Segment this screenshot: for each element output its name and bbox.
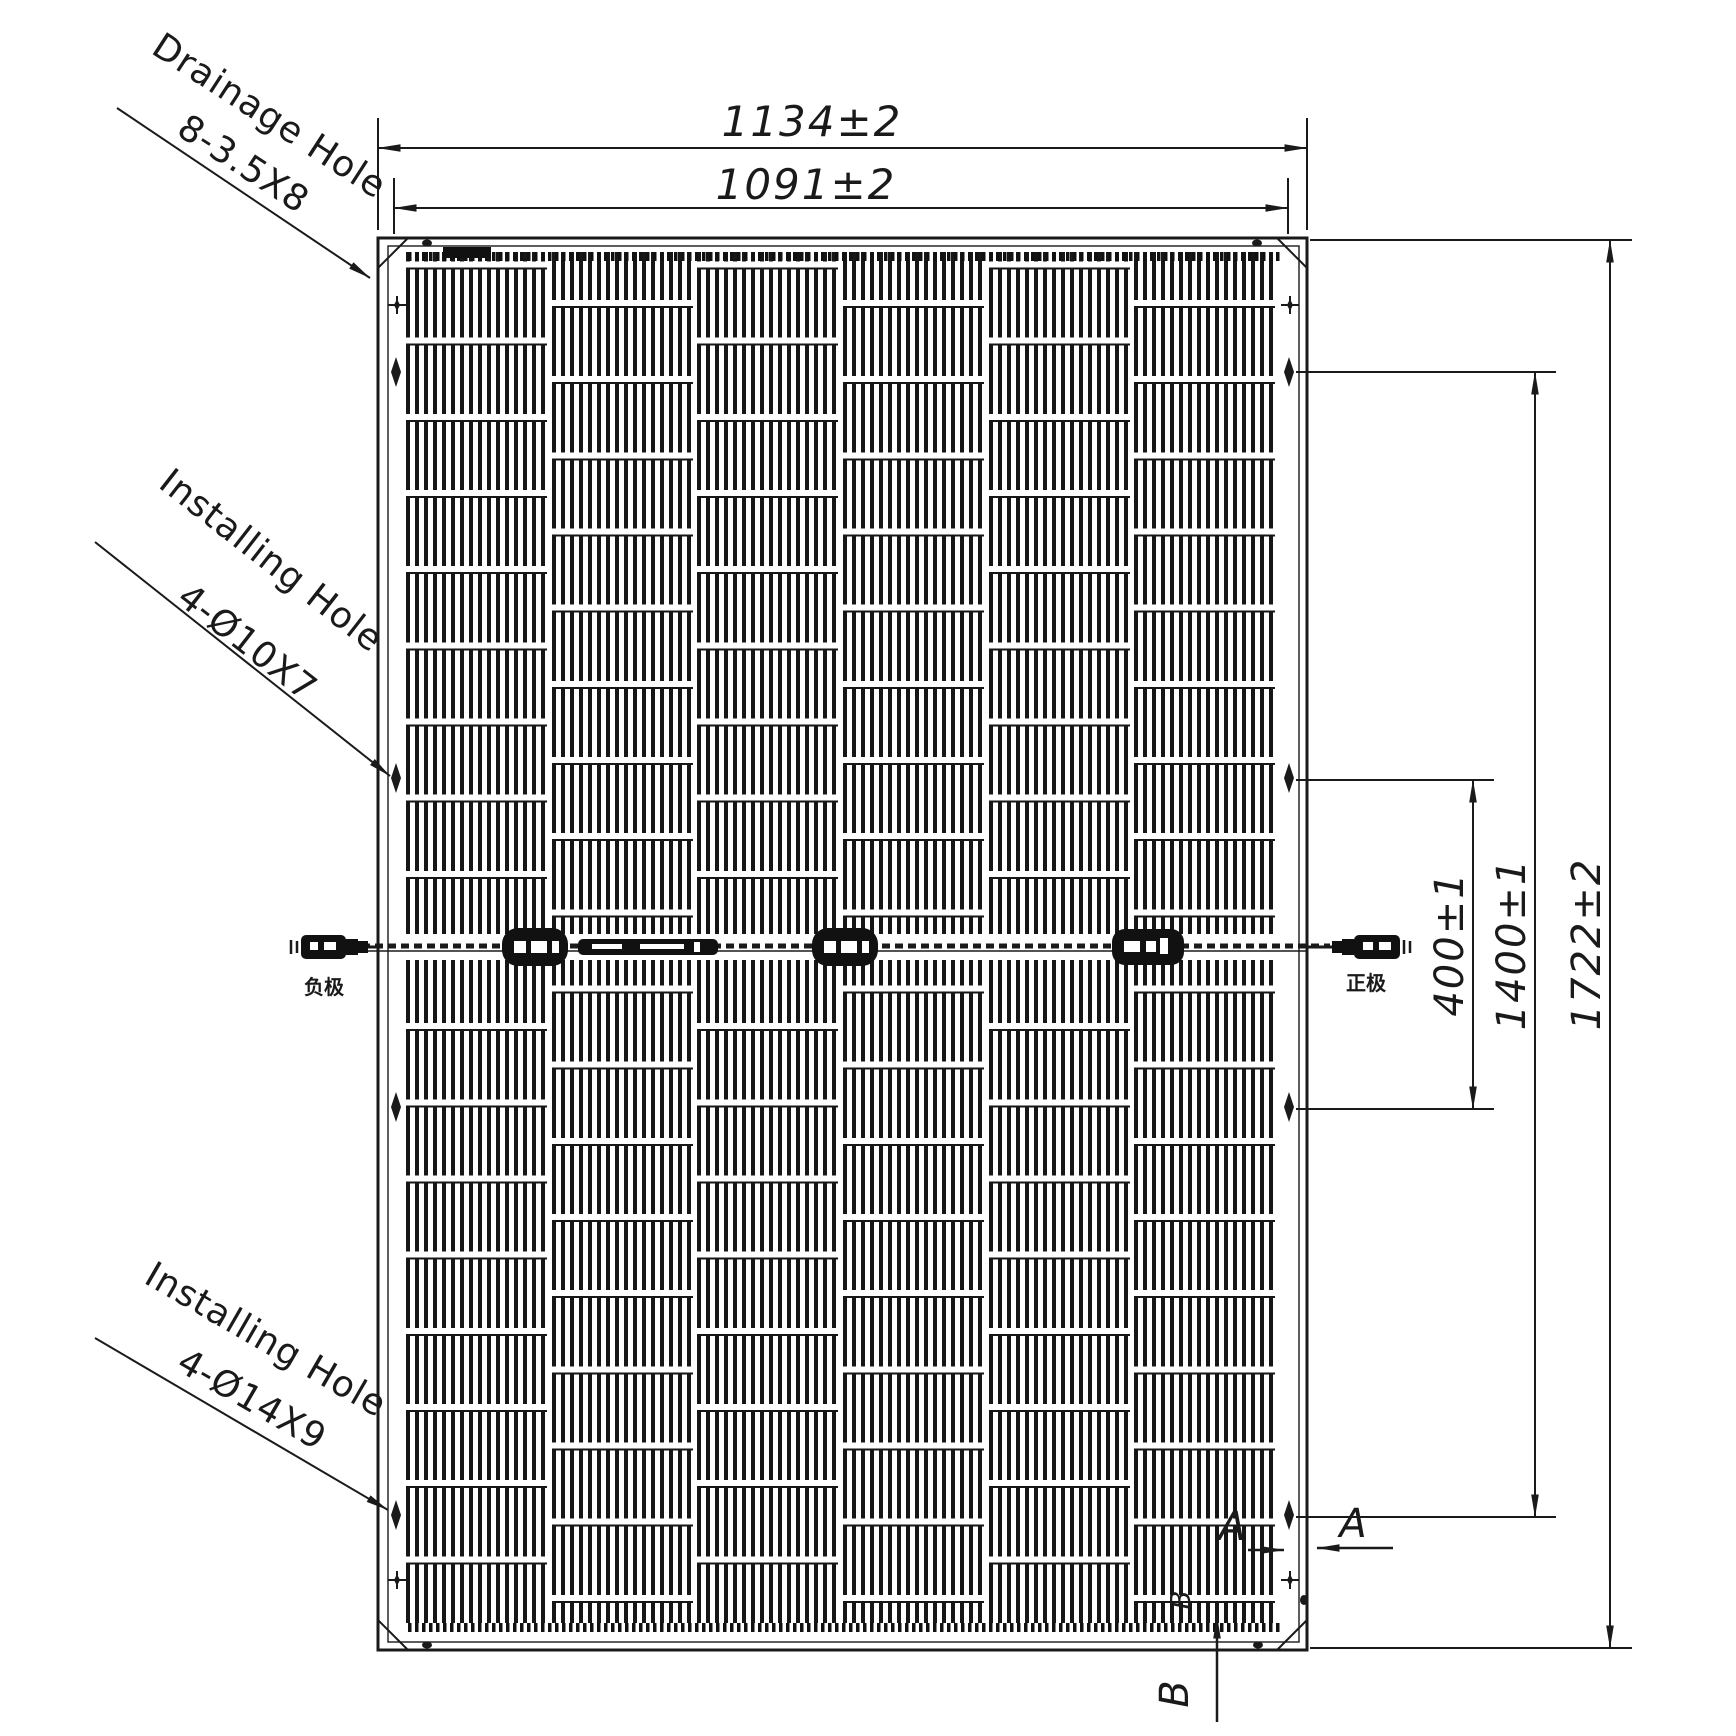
section-b-inner-label: B bbox=[1164, 1590, 1197, 1609]
positive-pole-label: 正极 bbox=[1346, 971, 1387, 995]
positive-connector bbox=[1307, 935, 1410, 959]
dim-inner-width-text: 1091±2 bbox=[716, 160, 897, 209]
installing-hole-upper-title: Installing Hole bbox=[151, 461, 390, 661]
callout-drainage-hole: Drainage Hole 8-3.5X8 bbox=[117, 26, 394, 278]
drawing-overlay: 负极 正极 1134±2 1091±2 1722±2 1400±1 bbox=[0, 0, 1736, 1736]
dim-hole-span-inner-text: 400±1 bbox=[1427, 871, 1473, 1016]
section-b-outer-label: B bbox=[1152, 1680, 1198, 1707]
dim-hole-span-outer-text: 1400±1 bbox=[1489, 858, 1535, 1031]
junction-cable-assembly: 负极 正极 bbox=[291, 928, 1410, 999]
section-a-outer-label: A bbox=[1336, 1501, 1366, 1547]
dim-outer-height-text: 1722±2 bbox=[1564, 858, 1610, 1031]
junction-box-3 bbox=[1112, 929, 1184, 965]
section-b-marks: B B bbox=[1152, 1590, 1217, 1722]
junction-box-2 bbox=[812, 928, 878, 966]
engineering-drawing: 负极 正极 1134±2 1091±2 1722±2 1400±1 bbox=[0, 0, 1736, 1736]
section-a-marks: A A bbox=[1215, 1501, 1393, 1550]
dim-outer-width-text: 1134±2 bbox=[722, 97, 903, 146]
junction-box-1 bbox=[502, 928, 568, 966]
negative-pole-label: 负极 bbox=[304, 975, 345, 999]
inline-connector-pair bbox=[578, 939, 718, 955]
callout-installing-hole-upper: Installing Hole 4-Ø10X7 bbox=[95, 461, 391, 776]
dimension-inner-width: 1091±2 bbox=[394, 160, 1288, 234]
callout-installing-hole-lower: Installing Hole 4-Ø14X9 bbox=[95, 1254, 394, 1510]
negative-connector bbox=[291, 935, 380, 959]
section-a-inner-label: A bbox=[1215, 1504, 1245, 1550]
